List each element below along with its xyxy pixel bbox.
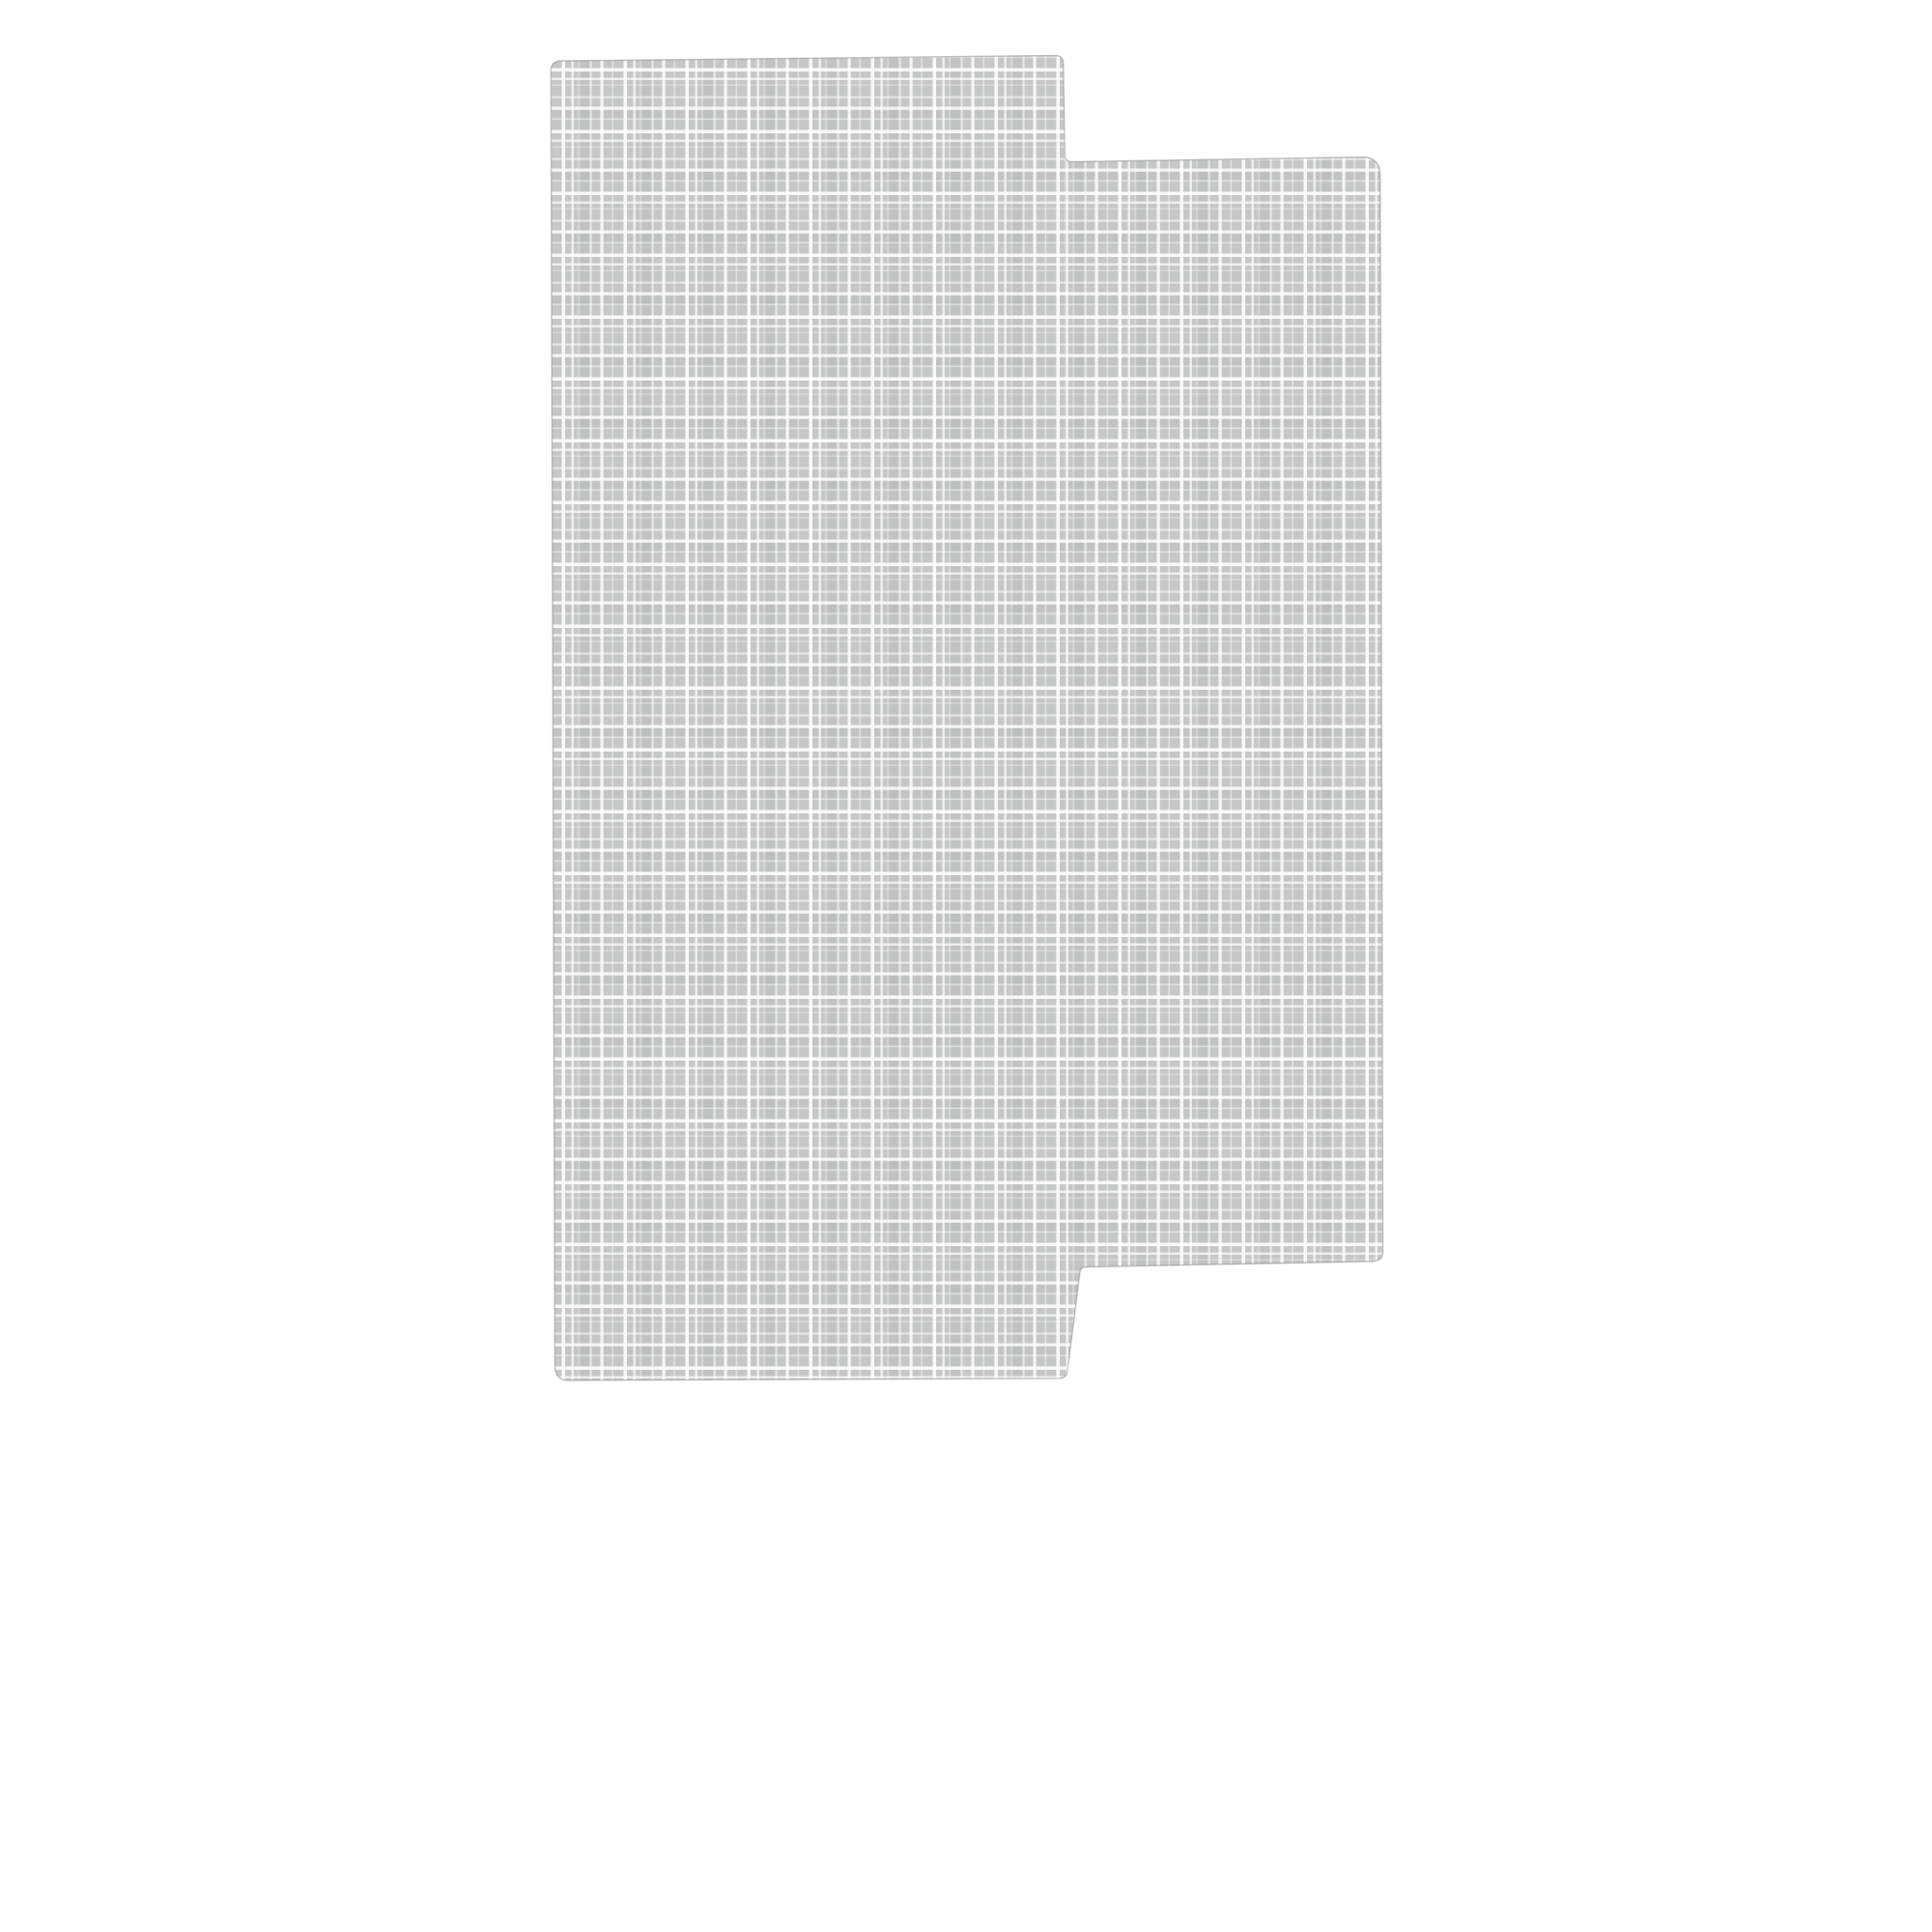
plaid-panel-shape: [551, 55, 1382, 1380]
page-background: [0, 0, 1932, 1932]
plaid-panel-graphic: [0, 0, 1932, 1932]
